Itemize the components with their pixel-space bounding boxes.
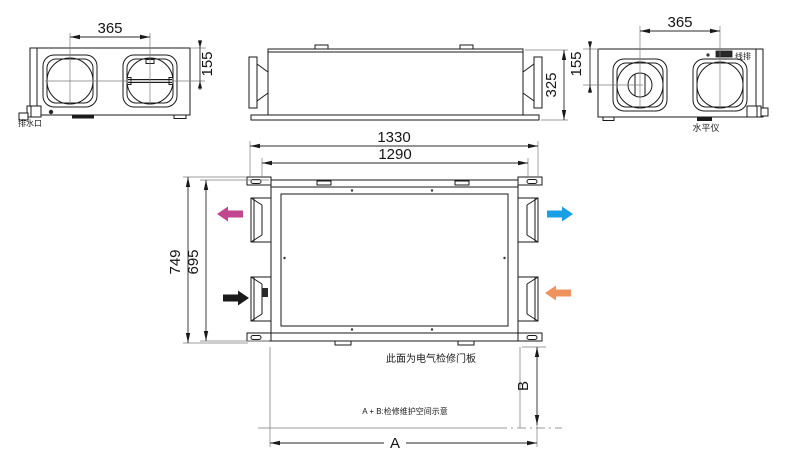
dim-695: 695: [185, 249, 202, 274]
drain-fitting-icon: [19, 106, 53, 120]
dimension-325: 325: [525, 50, 568, 120]
left-bottom-duct-collar: [251, 277, 271, 321]
unit-body: [271, 180, 518, 341]
corner-fitting-icon: [747, 106, 768, 117]
foot: [603, 117, 614, 121]
dim-1290: 1290: [378, 146, 411, 163]
hanger-tab: [315, 45, 328, 49]
dimension-365-left: 365: [45, 20, 205, 104]
foot: [174, 115, 186, 119]
left-top-duct-collar: [251, 198, 271, 242]
screw-dot: [706, 53, 709, 56]
dimension-365-right: 365: [583, 14, 720, 108]
left-end-view: 排水口 365 155: [18, 20, 216, 128]
plan-view: 1330 1290 749 695 此面为电气检修门板: [167, 129, 573, 365]
exhaust-air-arrow-icon: [217, 207, 243, 222]
right-top-duct-collar: [518, 198, 538, 242]
supply-air-arrow-icon: [547, 207, 573, 222]
dimension-A: A: [270, 425, 537, 452]
front-view: 325: [249, 45, 568, 120]
left-duct-stub: [249, 57, 268, 108]
dim-b-label: B: [515, 381, 532, 391]
dimension-1290: 1290: [262, 146, 528, 178]
dim-365-left: 365: [97, 20, 122, 37]
level-label: 水平仪: [692, 122, 719, 133]
dim-1330: 1330: [377, 129, 410, 146]
dim-155-left: 155: [199, 51, 216, 76]
dimension-749: 749: [167, 177, 248, 343]
dim-365-right: 365: [667, 14, 692, 31]
level-gauge-icon: [697, 117, 712, 121]
dim-155-right: 155: [568, 51, 585, 76]
dimension-695: 695: [185, 180, 269, 341]
erv-dimension-drawing: 排水口 365 155: [0, 0, 790, 469]
right-bottom-duct-collar: [518, 277, 538, 321]
dim-a-label: A: [390, 435, 400, 452]
dim-749: 749: [167, 249, 184, 274]
dimension-155-left: 155: [191, 40, 216, 90]
panel-note: 此面为电气检修门板: [386, 352, 476, 365]
terminal-strip-icon: [716, 51, 732, 57]
drain-label: 排水口: [18, 118, 42, 128]
right-duct-stub: [523, 57, 542, 108]
hanger-tab: [460, 45, 473, 49]
terminal-label: 线排: [735, 51, 751, 61]
right-end-view: 线排 水平仪 365 155: [568, 14, 768, 133]
engineering-drawing-sheet: 排水口 365 155: [0, 0, 790, 469]
dim-325: 325: [543, 72, 560, 97]
service-note: A + B:检修维护空间示意: [362, 406, 448, 416]
fresh-air-intake-arrow-icon: [223, 291, 249, 306]
bottom-vent: [72, 115, 94, 119]
return-air-arrow-icon: [545, 286, 571, 301]
